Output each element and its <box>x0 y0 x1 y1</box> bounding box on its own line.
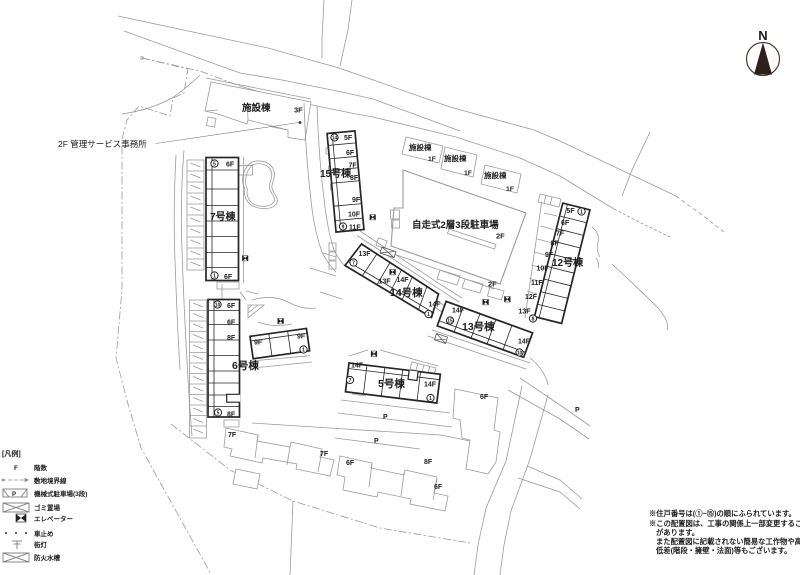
svg-text:6F: 6F <box>227 303 236 310</box>
svg-text:施設棟: 施設棟 <box>242 102 271 114</box>
svg-text:7F: 7F <box>228 432 237 439</box>
svg-text:また配置図に記載されない簡易な工作物や高: また配置図に記載されない簡易な工作物や高 <box>656 537 800 546</box>
svg-text:14号棟: 14号棟 <box>390 286 423 299</box>
svg-text:があります。: があります。 <box>656 528 699 537</box>
svg-text:8F: 8F <box>424 459 433 466</box>
svg-text:低差(階段・擁壁・法面)等もございます。: 低差(階段・擁壁・法面)等もございます。 <box>655 546 791 555</box>
svg-text:1: 1 <box>302 347 305 353</box>
svg-text:9F: 9F <box>297 334 306 341</box>
svg-text:14F: 14F <box>424 382 437 389</box>
svg-text:P: P <box>383 414 388 421</box>
svg-text:12F: 12F <box>525 294 538 301</box>
svg-text:13F: 13F <box>519 309 532 316</box>
svg-text:6F: 6F <box>224 274 233 281</box>
svg-text:P: P <box>575 407 580 414</box>
svg-text:施設棟: 施設棟 <box>409 142 432 152</box>
svg-text:敷地境界線: 敷地境界線 <box>34 476 67 485</box>
svg-text:9: 9 <box>342 224 345 230</box>
svg-text:[凡例]: [凡例] <box>2 449 21 458</box>
svg-text:12号棟: 12号棟 <box>552 256 584 269</box>
svg-text:5: 5 <box>217 410 220 416</box>
svg-text:N: N <box>758 28 767 43</box>
svg-text:6F: 6F <box>226 162 235 169</box>
svg-text:自走式2層3段駐車場: 自走式2層3段駐車場 <box>412 219 499 231</box>
svg-text:5F: 5F <box>567 208 576 215</box>
svg-text:14F: 14F <box>518 339 531 346</box>
svg-text:車止め: 車止め <box>34 529 54 538</box>
svg-text:6F: 6F <box>346 460 355 467</box>
svg-text:5F: 5F <box>344 135 353 142</box>
svg-text:6F: 6F <box>227 320 236 327</box>
svg-text:5: 5 <box>213 161 216 167</box>
svg-text:1F: 1F <box>506 186 514 193</box>
svg-text:8: 8 <box>532 316 535 322</box>
svg-text:10F: 10F <box>348 212 361 219</box>
svg-text:P: P <box>374 438 379 445</box>
svg-text:14: 14 <box>332 135 338 141</box>
svg-text:14F: 14F <box>452 308 465 315</box>
svg-text:7F: 7F <box>556 231 565 238</box>
svg-text:1: 1 <box>427 312 430 318</box>
svg-text:14F: 14F <box>429 302 442 309</box>
svg-text:※住戸番号は(①~⑮)の順にふられています。: ※住戸番号は(①~⑮)の順にふられています。 <box>649 509 796 518</box>
svg-text:2F 管理サービス事務所: 2F 管理サービス事務所 <box>58 139 147 149</box>
svg-text:8F: 8F <box>227 335 236 342</box>
svg-text:6F: 6F <box>561 220 570 227</box>
svg-text:階数: 階数 <box>34 463 48 472</box>
svg-text:1: 1 <box>213 273 216 279</box>
svg-text:7: 7 <box>349 378 352 384</box>
svg-text:15号棟: 15号棟 <box>320 167 352 180</box>
svg-text:7号棟: 7号棟 <box>210 210 237 223</box>
svg-text:1F: 1F <box>464 170 472 177</box>
svg-text:13F: 13F <box>379 279 392 286</box>
svg-text:13F: 13F <box>359 251 372 258</box>
svg-text:エレベーター: エレベーター <box>34 514 73 523</box>
svg-text:15: 15 <box>447 318 453 324</box>
svg-text:施設棟: 施設棟 <box>444 153 467 163</box>
svg-text:5号棟: 5号棟 <box>378 377 405 390</box>
svg-text:機械式駐車場(3段): 機械式駐車場(3段) <box>34 489 87 498</box>
svg-text:6号棟: 6号棟 <box>232 359 259 372</box>
svg-text:2F: 2F <box>488 280 497 289</box>
svg-text:11F: 11F <box>531 280 543 287</box>
svg-text:14F: 14F <box>351 363 364 370</box>
svg-text:11F: 11F <box>349 225 361 232</box>
svg-text:8F: 8F <box>551 241 560 248</box>
svg-text:10F: 10F <box>537 266 550 273</box>
svg-text:※この配置図は、工事の関係上一部変更すること: ※この配置図は、工事の関係上一部変更すること <box>649 519 800 528</box>
svg-text:F: F <box>14 465 18 472</box>
svg-text:街灯: 街灯 <box>33 540 48 549</box>
svg-text:7F: 7F <box>320 451 329 458</box>
svg-text:10: 10 <box>215 302 221 308</box>
svg-text:ゴミ置場: ゴミ置場 <box>34 503 61 512</box>
svg-text:7: 7 <box>352 260 355 266</box>
svg-text:6F: 6F <box>480 394 489 401</box>
svg-text:施設棟: 施設棟 <box>484 170 507 180</box>
svg-text:防火水槽: 防火水槽 <box>34 553 61 562</box>
svg-text:13号棟: 13号棟 <box>462 320 495 333</box>
svg-text:1F: 1F <box>428 156 436 163</box>
svg-text:P: P <box>12 492 16 498</box>
svg-text:1: 1 <box>429 396 432 402</box>
svg-text:14F: 14F <box>397 277 410 284</box>
svg-text:10: 10 <box>517 350 523 356</box>
svg-text:9F: 9F <box>352 197 361 204</box>
svg-text:6F: 6F <box>346 150 355 157</box>
svg-text:3F: 3F <box>294 106 303 115</box>
svg-text:9F: 9F <box>254 340 263 347</box>
svg-text:8F: 8F <box>350 175 359 182</box>
svg-text:1: 1 <box>580 209 583 215</box>
svg-text:8F: 8F <box>227 412 236 419</box>
svg-text:6F: 6F <box>434 484 443 491</box>
svg-text:2F: 2F <box>496 232 505 241</box>
